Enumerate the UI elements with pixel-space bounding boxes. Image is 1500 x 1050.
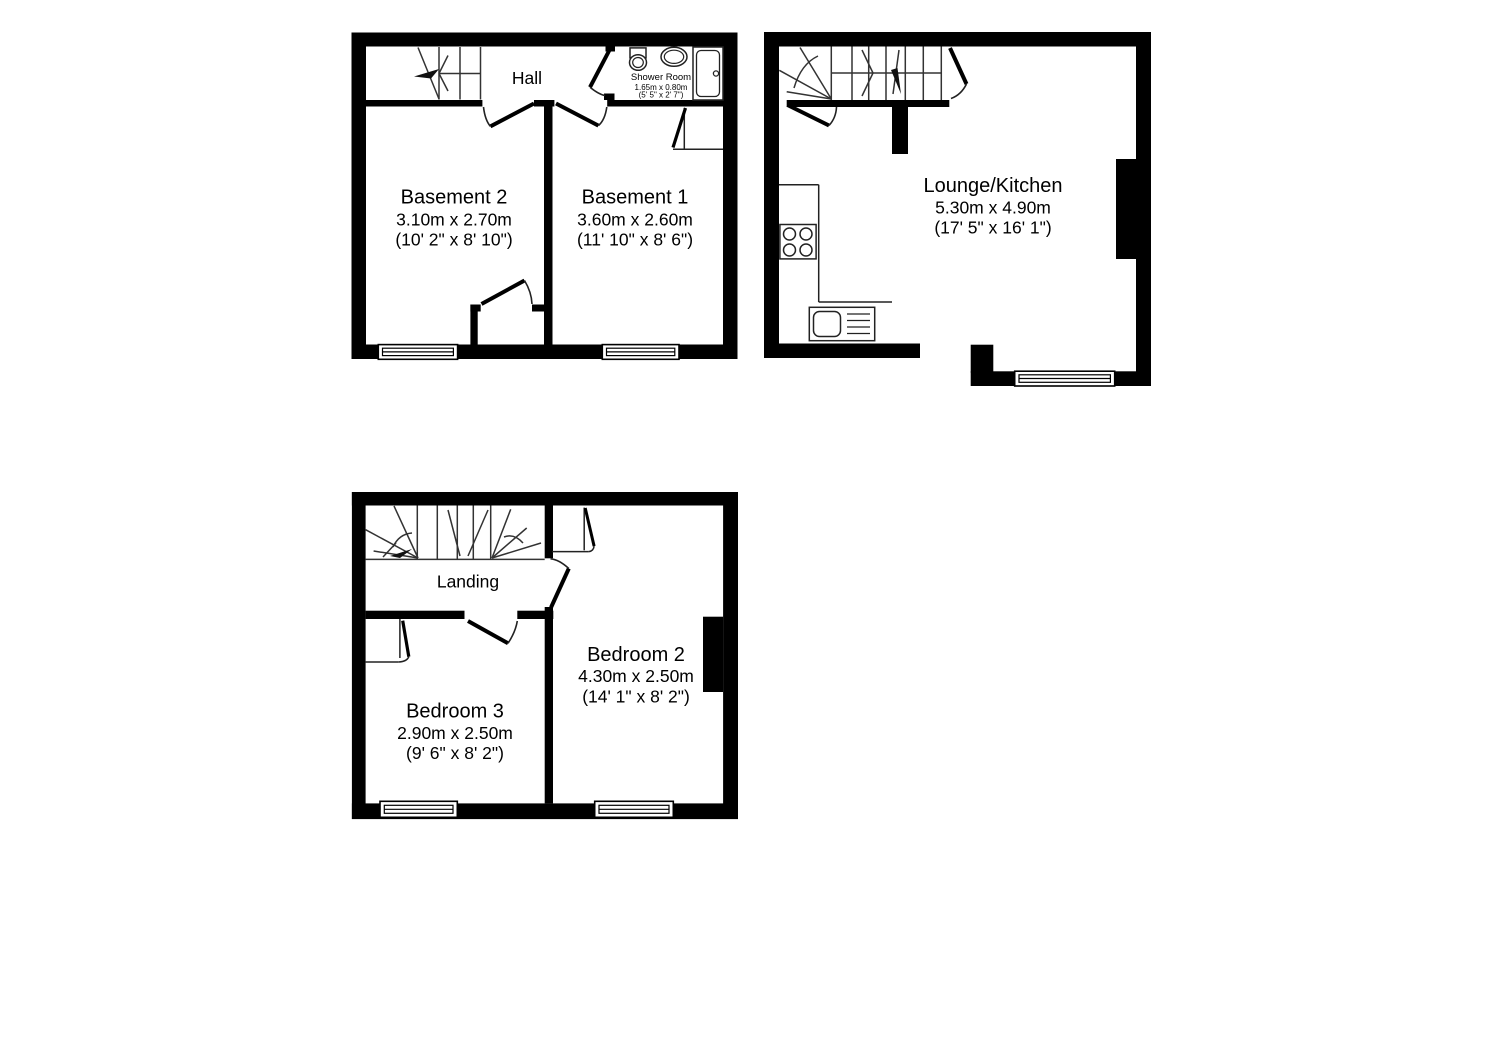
svg-text:Lounge/Kitchen: Lounge/Kitchen [923,175,1062,197]
svg-text:2.90m x 2.50m: 2.90m x 2.50m [397,723,513,743]
svg-text:(11' 10" x 8' 6"): (11' 10" x 8' 6") [577,230,693,250]
svg-text:(10' 2" x 8' 10"): (10' 2" x 8' 10") [395,230,512,250]
svg-text:(9' 6" x 8' 2"): (9' 6" x 8' 2") [406,743,504,763]
svg-text:Basement 2: Basement 2 [401,187,508,209]
svg-text:Bedroom 2: Bedroom 2 [587,644,685,666]
svg-text:3.10m x 2.70m: 3.10m x 2.70m [396,209,512,229]
svg-text:Basement 1: Basement 1 [582,187,689,209]
svg-text:3.60m x 2.60m: 3.60m x 2.60m [577,209,693,229]
svg-text:5.30m x 4.90m: 5.30m x 4.90m [935,198,1051,218]
svg-text:Landing: Landing [437,571,499,591]
svg-text:(17' 5" x 16' 1"): (17' 5" x 16' 1") [934,218,1051,238]
svg-text:Shower Room: Shower Room [631,72,691,83]
svg-text:Bedroom 3: Bedroom 3 [406,701,504,723]
svg-text:Hall: Hall [512,68,542,88]
svg-text:4.30m x 2.50m: 4.30m x 2.50m [578,666,694,686]
svg-text:(14' 1" x 8' 2"): (14' 1" x 8' 2") [582,687,690,707]
svg-text:(5' 5" x 2' 7"): (5' 5" x 2' 7") [639,91,684,100]
